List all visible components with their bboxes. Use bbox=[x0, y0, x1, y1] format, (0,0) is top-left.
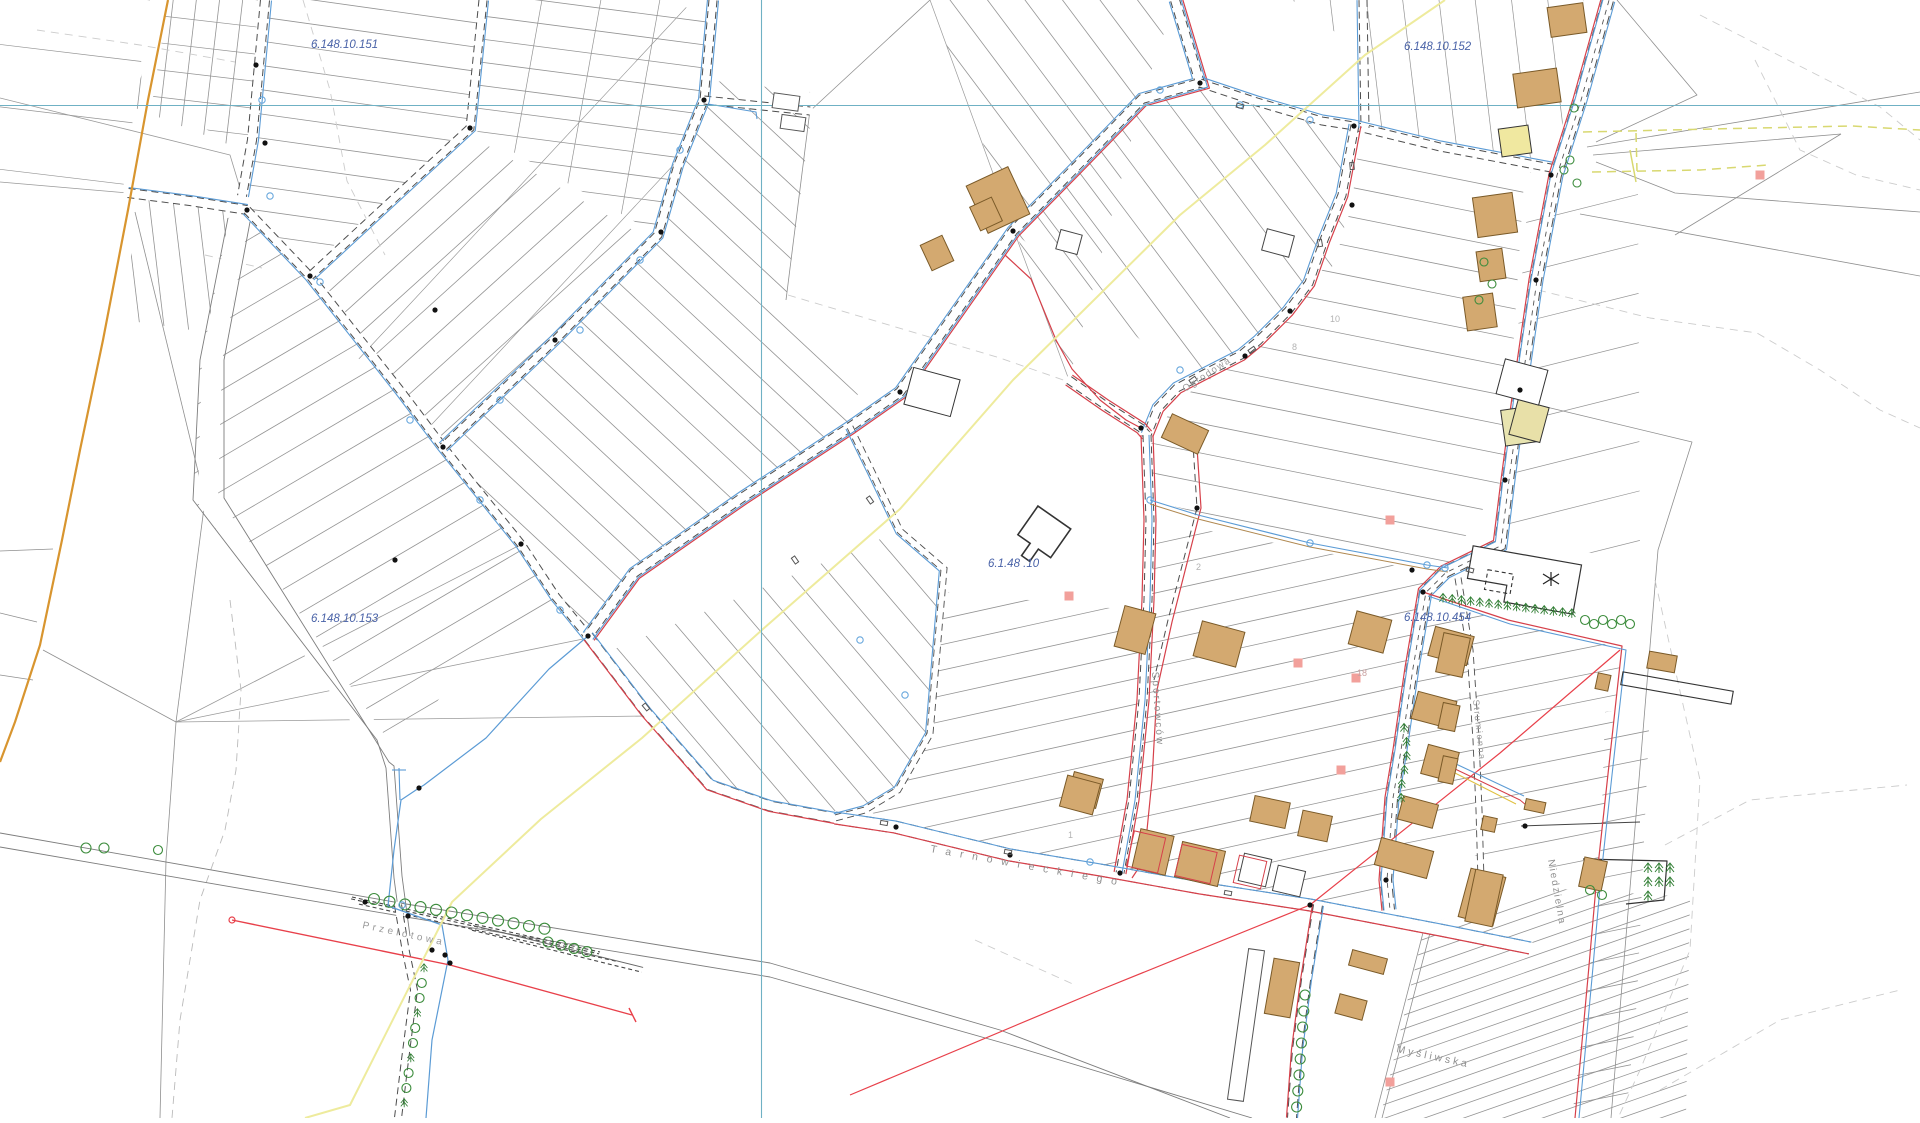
svg-text:10: 10 bbox=[1330, 314, 1340, 324]
svg-text:6.148.10.151: 6.148.10.151 bbox=[311, 39, 378, 51]
svg-text:1: 1 bbox=[1068, 830, 1073, 840]
svg-text:18: 18 bbox=[1357, 668, 1367, 678]
svg-text:8: 8 bbox=[1292, 342, 1297, 352]
svg-text:6.148.10.454: 6.148.10.454 bbox=[1404, 612, 1471, 624]
svg-text:6.1.48 .10: 6.1.48 .10 bbox=[988, 558, 1040, 570]
svg-text:6.148.10.153: 6.148.10.153 bbox=[311, 613, 379, 625]
svg-text:2: 2 bbox=[1196, 562, 1201, 572]
svg-text:6.148.10.152: 6.148.10.152 bbox=[1404, 41, 1472, 53]
